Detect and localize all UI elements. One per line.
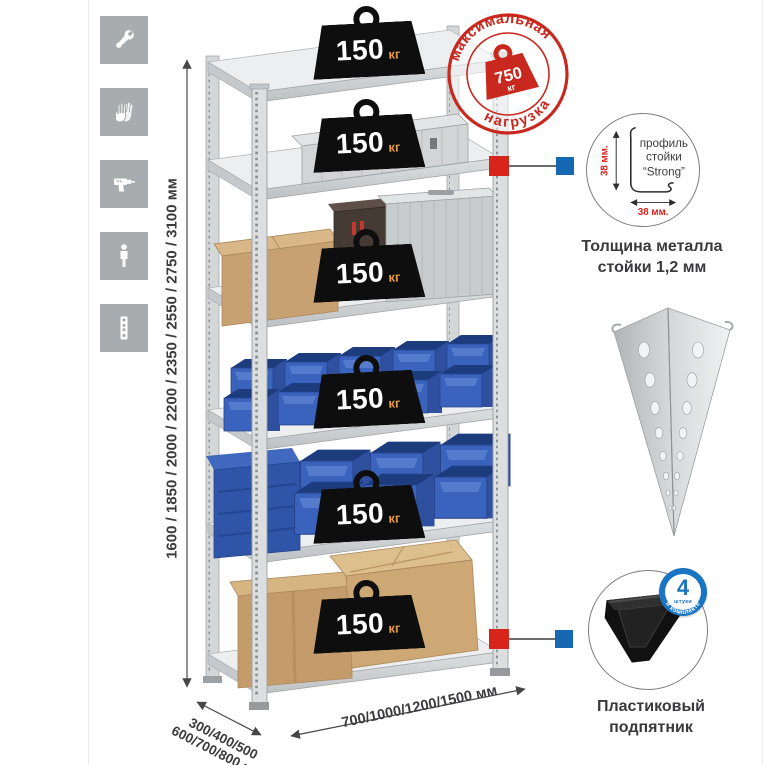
product-infographic: 150кг 150кг 150кг 150кг 150кг 150кг 1600… xyxy=(0,0,765,765)
profile-detail-circle: 38 мм. 38 мм. профиль стойки “Strong” xyxy=(586,113,700,227)
profile-caption: Толщина металла стойки 1,2 мм xyxy=(552,237,752,279)
profile-caption-line1: Толщина металла xyxy=(552,237,752,258)
weight-value: 150 xyxy=(335,497,385,531)
shelf-load-weight-1: 150кг xyxy=(311,20,426,80)
shelf-load-weight-3: 150кг xyxy=(311,243,426,303)
shelf-load-weight-6: 150кг xyxy=(311,594,426,654)
shelf-load-weight-4: 150кг xyxy=(311,369,426,429)
weight-unit: кг xyxy=(388,510,401,526)
profile-label-line3: “Strong” xyxy=(643,165,685,178)
foot-count-badge: 4 штуки в комплекте xyxy=(659,568,707,616)
shelf-load-weight-5: 150кг xyxy=(311,484,426,544)
weight-value: 150 xyxy=(335,33,385,67)
profile-caption-line2: стойки 1,2 мм xyxy=(552,258,752,279)
weight-unit: кг xyxy=(388,620,401,636)
weight-value: 150 xyxy=(335,126,385,160)
shelf-load-weight-2: 150кг xyxy=(311,113,426,173)
weight-unit: кг xyxy=(388,46,401,62)
foot-caption: Пластиковый подпятник xyxy=(556,697,746,739)
badge-arc-label: в комплекте xyxy=(664,601,702,616)
upright-post-image xyxy=(600,298,750,548)
weight-value: 150 xyxy=(335,382,385,416)
profile-label-line2: стойки xyxy=(646,151,682,164)
svg-text:в комплекте: в комплекте xyxy=(664,601,702,616)
profile-dim-vertical: 38 мм. xyxy=(599,145,610,176)
weight-unit: кг xyxy=(388,269,401,285)
foot-caption-line1: Пластиковый xyxy=(556,697,746,718)
weight-unit: кг xyxy=(388,395,401,411)
profile-label-line1: профиль xyxy=(640,137,688,150)
foot-caption-line2: подпятник xyxy=(556,718,746,739)
weight-value: 150 xyxy=(335,607,385,641)
profile-dim-horizontal: 38 мм. xyxy=(638,207,669,218)
weight-value: 150 xyxy=(335,256,385,290)
foot-callout-marker xyxy=(489,629,573,649)
weight-unit: кг xyxy=(388,139,401,155)
height-dimension-label: 1600 / 1850 / 2000 / 2200 / 2350 / 2550 … xyxy=(164,169,181,569)
profile-callout-marker xyxy=(489,156,574,176)
